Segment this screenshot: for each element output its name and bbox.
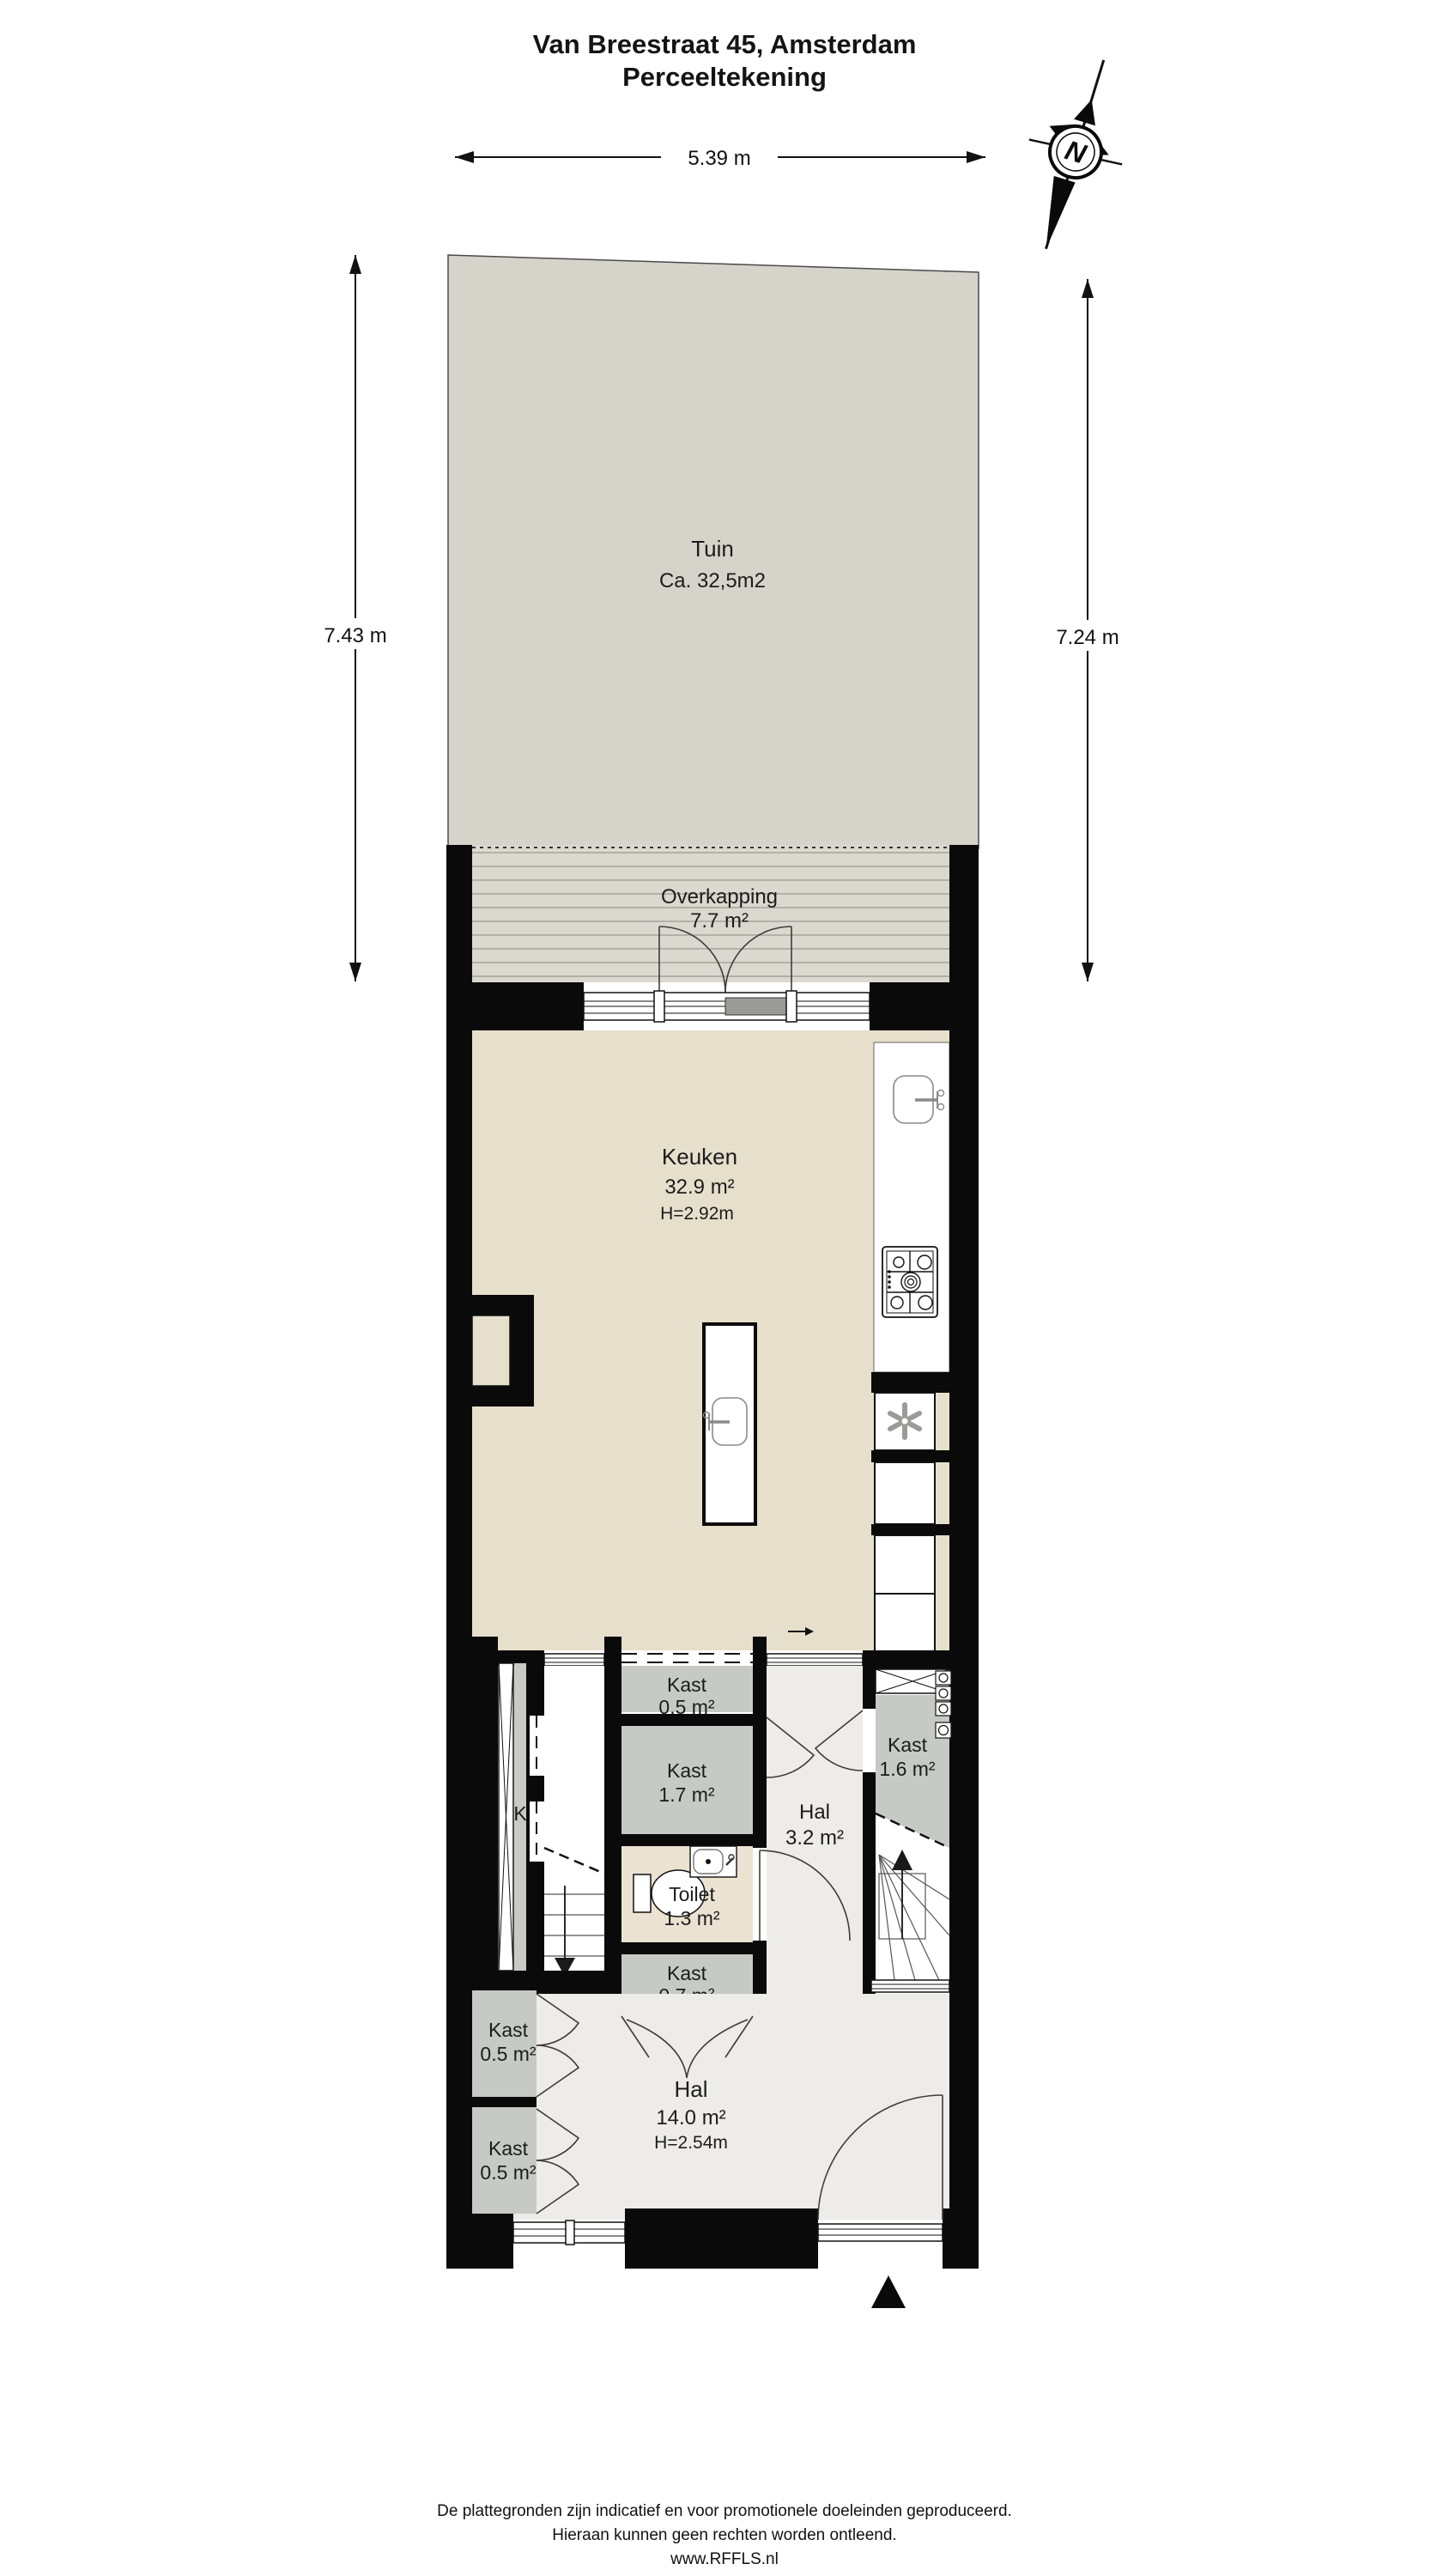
kitchen-island <box>704 1324 756 1524</box>
dimension-right: 7.24 m <box>1033 279 1143 981</box>
toilet-sink-icon <box>690 1846 737 1877</box>
wall-hal-kast16-top <box>863 1669 876 1709</box>
overkapping-area: 7.7 m² <box>690 909 749 933</box>
toilet-area: 1.3 m² <box>664 1907 720 1929</box>
floorplan-canvas: Van Breestraat 45, Amsterdam Perceelteke… <box>0 0 1449 2576</box>
compass-icon: N <box>1000 46 1149 264</box>
passage-dashed-opening <box>621 1650 753 1666</box>
hal-groot-label: Hal <box>674 2076 707 2102</box>
dimension-top-label: 5.39 m <box>688 147 750 170</box>
appliance-box-2 <box>875 1535 935 1594</box>
dimension-right-label: 7.24 m <box>1056 626 1119 649</box>
dimension-left: 7.43 m <box>300 255 410 981</box>
overkapping-label: Overkapping <box>661 885 778 908</box>
dimension-top: 5.39 m <box>455 141 985 172</box>
kast-16-label: Kast <box>888 1734 928 1756</box>
wall-left-middle <box>472 1637 498 1977</box>
hal-klein-label: Hal <box>799 1801 830 1824</box>
hal-groot-height: H=2.54m <box>654 2133 728 2153</box>
rear-facade <box>446 982 979 1036</box>
page-title-line2: Perceeltekening <box>622 62 827 92</box>
tuin-label: Tuin <box>691 536 734 562</box>
wall-left-outer <box>446 982 472 2214</box>
kast-16-area: 1.6 m² <box>879 1758 936 1780</box>
kast-17-label: Kast <box>667 1759 707 1782</box>
hal-groot-area: 14.0 m² <box>656 2106 725 2129</box>
kast-07-label: Kast <box>667 1962 707 1984</box>
stairs-up <box>876 1848 949 1980</box>
appliance-box-3 <box>875 1594 935 1651</box>
kast-links-boven-label: Kast <box>488 2019 529 2041</box>
page-title-line1: Van Breestraat 45, Amsterdam <box>533 29 917 59</box>
footer-disclaimer-line2: Hieraan kunnen geen rechten worden ontle… <box>552 2526 896 2544</box>
gas-hob-icon <box>882 1247 937 1317</box>
room-kast-links-onder <box>472 2107 537 2214</box>
sliding-door-panel <box>725 998 790 1015</box>
tuin-area: Ca. 32,5m2 <box>659 569 766 592</box>
meter-boxes-icon <box>936 1671 951 1738</box>
keuken-height: H=2.92m <box>660 1204 734 1224</box>
dimension-left-label: 7.43 m <box>324 624 386 647</box>
kitchen-counter <box>874 1042 949 1372</box>
kast-17-area: 1.7 m² <box>658 1783 715 1806</box>
wall-right-outer <box>949 982 979 2269</box>
appliance-box-1 <box>875 1462 935 1524</box>
hal-klein-area: 3.2 m² <box>785 1826 844 1850</box>
stairs-down <box>544 1666 604 1977</box>
kast-links-boven-area: 0.5 m² <box>480 2043 537 2065</box>
kast-top-label: Kast <box>667 1674 707 1696</box>
entrance-marker <box>871 2275 906 2308</box>
wall-hal-kast16-bottom <box>863 1772 876 1994</box>
kast-links-onder-area: 0.5 m² <box>480 2161 537 2184</box>
footer-disclaimer-line1: De plattegronden zijn indicatief en voor… <box>437 2502 1012 2520</box>
chimney-niche <box>472 1295 534 1406</box>
toilet-label: Toilet <box>669 1883 715 1905</box>
keuken-area: 32.9 m² <box>664 1176 734 1199</box>
keuken-label: Keuken <box>662 1144 737 1170</box>
footer-website: www.RFFLS.nl <box>670 2550 779 2568</box>
kast-links-onder-label: Kast <box>488 2137 529 2160</box>
shaft-k-label: K <box>513 1802 527 1825</box>
